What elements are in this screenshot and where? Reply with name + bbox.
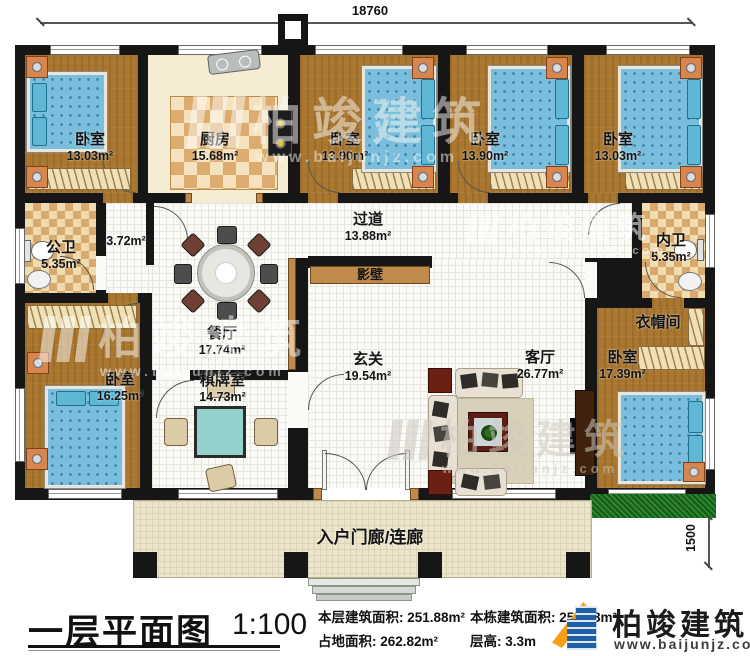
foyer-west-wall — [296, 258, 308, 370]
sink — [678, 272, 702, 291]
window — [50, 45, 120, 55]
label-small-hall: 3.72m² — [98, 234, 154, 248]
window — [315, 45, 403, 55]
label-porch: 入户门廊/连廊 — [280, 528, 460, 547]
nightstand — [26, 56, 48, 78]
bath-door-opening — [96, 256, 106, 290]
label-corridor: 过道13.88m² — [333, 212, 403, 243]
side-cabinet — [428, 470, 452, 495]
label-bedroom-tr: 卧室13.03m² — [583, 132, 653, 163]
door-opening — [108, 293, 138, 303]
label-inner-bath: 内卫5.35m² — [644, 233, 698, 264]
nightstand — [680, 57, 702, 79]
floor-plan: 18760 12160 600 1500 — [0, 0, 750, 656]
label-screen-wall: 影壁 — [344, 268, 396, 283]
dining-chair — [217, 226, 237, 244]
stove — [268, 110, 292, 156]
mahjong-table — [194, 406, 246, 458]
porch-column — [418, 552, 442, 578]
nightstand — [412, 57, 434, 79]
door-opening — [652, 298, 684, 308]
dining-chair — [217, 302, 237, 320]
plan-scale: 1:100 — [232, 608, 307, 642]
toilet-tank — [24, 240, 31, 262]
nightstand — [26, 448, 48, 470]
foyer-west-opening — [288, 372, 308, 428]
door-opening — [308, 193, 338, 203]
nightstand — [680, 166, 702, 188]
window — [15, 388, 25, 462]
chess-chair — [254, 418, 278, 446]
stat-land-area: 占地面积: 262.82m² — [318, 630, 438, 650]
wardrobe — [27, 305, 137, 329]
dimension-1500-value: 1500 — [684, 524, 698, 552]
side-cabinet — [428, 368, 452, 393]
coffee-table — [468, 412, 508, 452]
door-opening — [585, 262, 597, 298]
grass-strip — [590, 494, 716, 518]
title-underline — [28, 645, 280, 648]
label-public-bath: 公卫5.35m² — [36, 240, 86, 271]
door-opening — [588, 193, 618, 203]
nightstand — [412, 166, 434, 188]
nightstand — [26, 166, 48, 188]
toilet-tank — [697, 239, 704, 261]
label-kitchen: 厨房15.68m² — [180, 132, 250, 163]
dimension-top-value: 18760 — [330, 3, 410, 18]
porch-column — [133, 552, 157, 578]
door-jamb — [313, 488, 322, 500]
entry-step — [312, 586, 416, 594]
nightstand — [546, 57, 568, 79]
label-bedroom-bl: 卧室16.25m² — [85, 372, 155, 403]
door-jamb — [256, 193, 263, 203]
entry-step — [316, 594, 412, 601]
sofa — [428, 395, 458, 477]
door-opening — [103, 193, 133, 203]
sofa — [455, 468, 507, 496]
window — [705, 214, 715, 268]
door-jamb — [185, 193, 192, 203]
nightstand — [546, 166, 568, 188]
sink — [27, 270, 51, 289]
chimney-inner — [285, 21, 301, 39]
nightstand — [683, 462, 705, 482]
dining-table — [198, 245, 254, 301]
nightstand — [27, 352, 49, 374]
window — [466, 45, 548, 55]
label-dining: 餐厅17.74m² — [187, 326, 257, 357]
title-underline-2 — [28, 650, 280, 651]
tv-cabinet — [575, 390, 595, 476]
label-bedroom-t2: 卧室13.90m² — [310, 132, 380, 163]
porch-column — [566, 552, 590, 578]
logo-url: www.baijunjz.com — [614, 636, 750, 652]
window — [606, 45, 690, 55]
dimension-line-top — [40, 22, 692, 24]
porch-column — [284, 552, 308, 578]
stat-floor-height: 层高: 3.3m — [470, 630, 536, 650]
label-bedroom-tl: 卧室13.03m² — [55, 132, 125, 163]
dining-partition-trim — [288, 258, 296, 370]
label-bedroom-t3: 卧室13.90m² — [450, 132, 520, 163]
door-jamb — [410, 488, 419, 500]
entry-step — [308, 578, 420, 586]
label-foyer: 玄关19.54m² — [333, 352, 403, 383]
window — [178, 489, 278, 499]
window — [48, 489, 122, 499]
label-cloakroom: 衣帽间 — [622, 315, 694, 332]
chess-chair — [164, 418, 188, 446]
dining-chair — [260, 264, 278, 284]
label-chess-room: 棋牌室14.73m² — [185, 373, 260, 404]
label-bedroom-br: 卧室17.39m² — [585, 350, 660, 381]
window — [705, 398, 715, 470]
door-opening — [458, 193, 488, 203]
kitchen-opening — [192, 193, 256, 203]
stat-floor-area: 本层建筑面积: 251.88m² — [318, 606, 465, 626]
label-living: 客厅26.77m² — [505, 350, 575, 381]
dining-chair — [174, 264, 192, 284]
tv — [570, 418, 576, 454]
logo-icon — [552, 598, 606, 650]
